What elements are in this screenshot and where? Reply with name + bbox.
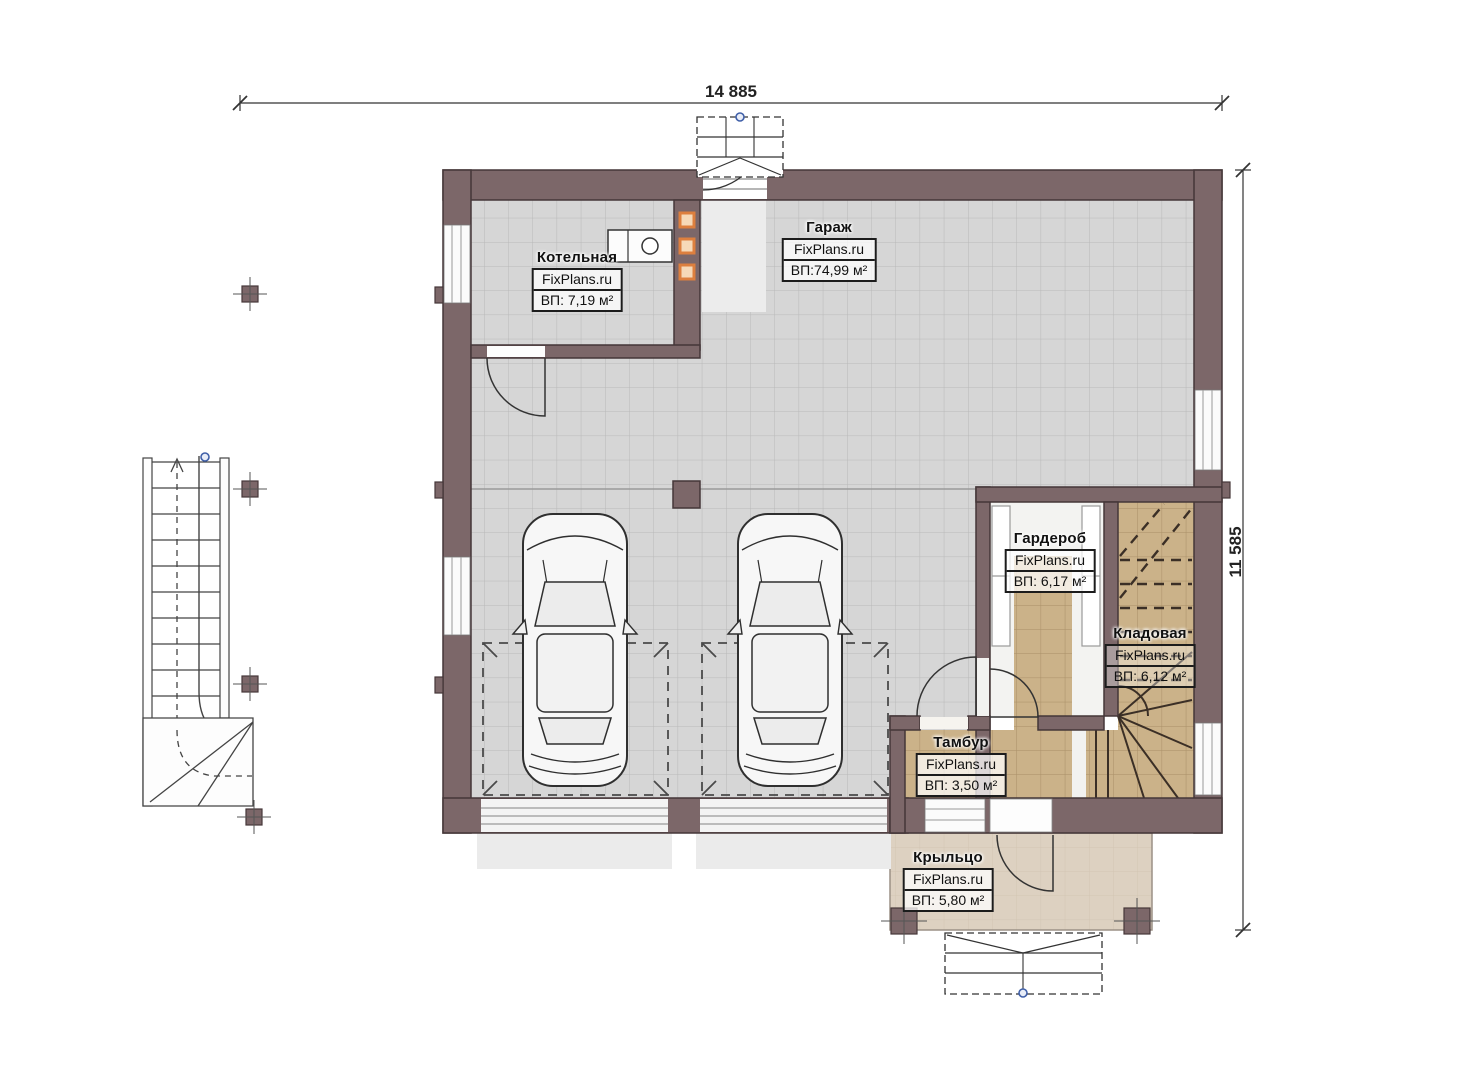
- wall-quadrant-horizontal: [976, 487, 1222, 502]
- room-info-box: FixPlans.ru ВП: 6,12 м²: [1105, 644, 1196, 688]
- floor-stair-strip: [1086, 730, 1118, 798]
- car-left-icon: [513, 514, 637, 786]
- room-name: Крыльцо: [903, 849, 994, 866]
- window-left-1: [444, 225, 470, 303]
- room-label-boiler: Котельная FixPlans.ru ВП: 7,19 м²: [532, 249, 623, 312]
- room-name: Котельная: [532, 249, 623, 266]
- room-info-box: FixPlans.ru ВП: 6,17 м²: [1005, 549, 1096, 593]
- car-right-icon: [728, 514, 852, 786]
- watermark: FixPlans.ru: [918, 755, 1005, 774]
- watermark: FixPlans.ru: [534, 270, 621, 289]
- room-label-porch: Крыльцо FixPlans.ru ВП: 5,80 м²: [903, 849, 994, 912]
- watermark: FixPlans.ru: [905, 870, 992, 889]
- room-area: ВП:74,99 м²: [784, 259, 875, 280]
- room-name: Тамбур: [916, 734, 1007, 751]
- window-left-2: [444, 557, 470, 635]
- entry-steps-top: [697, 113, 783, 177]
- room-info-box: FixPlans.ru ВП: 5,80 м²: [903, 868, 994, 912]
- watermark: FixPlans.ru: [1007, 551, 1094, 570]
- window-right-1: [1195, 390, 1221, 470]
- wall-vestibule-top-1: [890, 716, 920, 730]
- room-name: Гардероб: [1005, 530, 1096, 547]
- vent-shaft-icon: [680, 213, 694, 279]
- apron-garage-door-2: [696, 831, 891, 869]
- garage-door-2: [700, 799, 887, 832]
- room-label-wardrobe: Гардероб FixPlans.ru ВП: 6,17 м²: [1005, 530, 1096, 593]
- floor-plan-canvas: 14 885 11 585 Гараж FixPlans.ru ВП:74,99…: [0, 0, 1473, 1080]
- watermark: FixPlans.ru: [784, 240, 875, 259]
- room-label-storage: Кладовая FixPlans.ru ВП: 6,12 м²: [1105, 625, 1196, 688]
- watermark: FixPlans.ru: [1107, 646, 1194, 665]
- entrance-door-opening: [990, 799, 1052, 832]
- room-area: ВП: 5,80 м²: [905, 889, 992, 910]
- vestibule-stair-opening: [1072, 730, 1086, 798]
- room-label-garage: Гараж FixPlans.ru ВП:74,99 м²: [782, 219, 877, 282]
- wall-vestibule-top-2: [968, 716, 990, 730]
- room-info-box: FixPlans.ru ВП: 7,19 м²: [532, 268, 623, 312]
- wall-vestibule-left: [890, 716, 905, 833]
- window-vestibule: [925, 799, 985, 832]
- room-name: Гараж: [782, 219, 877, 236]
- room-area: ВП: 7,19 м²: [534, 289, 621, 310]
- room-name: Кладовая: [1105, 625, 1196, 642]
- room-label-vestibule: Тамбур FixPlans.ru ВП: 3,50 м²: [916, 734, 1007, 797]
- room-info-box: FixPlans.ru ВП:74,99 м²: [782, 238, 877, 282]
- apron-garage-door-1: [477, 831, 672, 869]
- porch-steps: [945, 933, 1102, 997]
- floor-plan-drawing: [0, 0, 1473, 1080]
- exterior-stair-left: [143, 453, 253, 806]
- room-area: ВП: 6,17 м²: [1007, 570, 1094, 591]
- room-area: ВП: 3,50 м²: [918, 774, 1005, 795]
- wall-top: [443, 170, 1222, 200]
- garage-center-pier: [673, 481, 700, 508]
- apron-top-door: [702, 200, 766, 312]
- room-info-box: FixPlans.ru ВП: 3,50 м²: [916, 753, 1007, 797]
- room-area: ВП: 6,12 м²: [1107, 665, 1194, 686]
- window-right-2: [1195, 723, 1221, 795]
- garage-door-1: [481, 799, 668, 832]
- dimension-width-label: 14 885: [705, 82, 757, 102]
- dimension-height-label: 11 585: [1226, 526, 1246, 577]
- wall-vestibule-top-3: [1038, 716, 1104, 730]
